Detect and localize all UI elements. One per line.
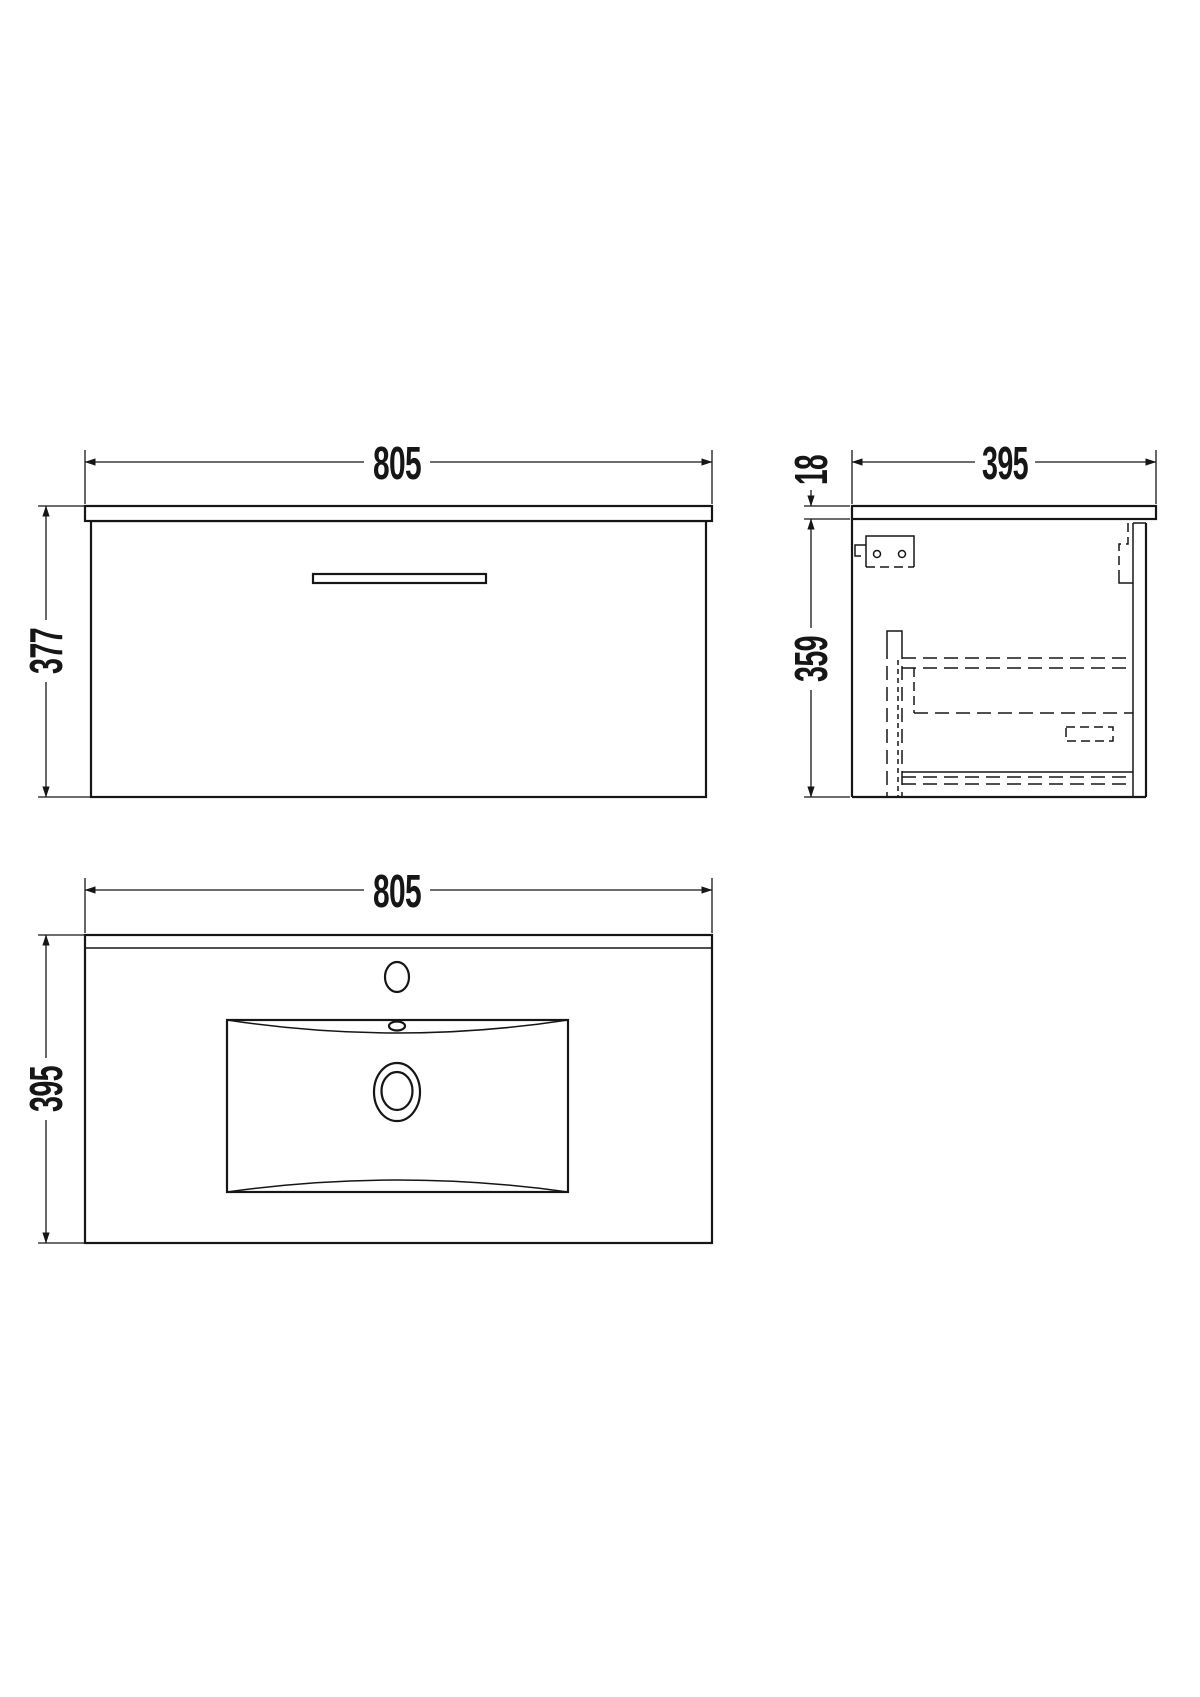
side-front-fixing-bracket: [1119, 523, 1133, 583]
side-worktop-thickness-dimension: 18: [785, 455, 850, 519]
front-height-label: 377: [20, 628, 72, 674]
front-cabinet-body: [91, 521, 706, 797]
side-section-view: 395 18 359: [785, 437, 1156, 797]
plan-worktop-outline: [85, 935, 712, 1243]
side-mounting-rail: [887, 631, 902, 797]
side-wall-bracket: [855, 536, 914, 567]
basin-bowl: [227, 1020, 568, 1192]
drawer-runner-clip: [1066, 727, 1113, 741]
plan-depth-label: 395: [20, 1066, 72, 1112]
side-cabinet-height-label: 359: [785, 636, 837, 682]
fixing-bracket-step: [1119, 570, 1133, 583]
bracket-wall-hook: [855, 545, 866, 556]
side-depth-label: 395: [982, 437, 1028, 489]
front-elevation-view: 805 377: [20, 437, 712, 797]
technical-drawing-page: 805 377 395 18: [0, 0, 1200, 1697]
front-width-label: 805: [373, 437, 421, 489]
side-worktop: [852, 506, 1156, 519]
plan-width-dimension: 805: [85, 865, 712, 933]
front-worktop: [85, 506, 712, 521]
bracket-screw-hole: [899, 551, 906, 558]
waste-inner-ring: [382, 1072, 413, 1110]
bracket-outline: [866, 536, 914, 567]
rail-top-cap: [887, 631, 902, 645]
bracket-screw-hole: [874, 551, 881, 558]
technical-drawing-canvas: 805 377 395 18: [0, 0, 1200, 1697]
side-depth-dimension: 395: [852, 437, 1156, 504]
plan-depth-dimension: 395: [20, 935, 84, 1243]
fixing-bracket-hidden: [1119, 523, 1128, 570]
side-worktop-thickness-label: 18: [785, 455, 837, 485]
plan-basin-view: 805 395: [20, 865, 712, 1243]
basin-back-slope-curve: [227, 1180, 568, 1192]
front-width-dimension: 805: [85, 437, 712, 504]
side-cabinet-height-dimension: 359: [785, 519, 850, 797]
overflow-hole: [389, 1022, 405, 1031]
side-drawer-box-hidden: [902, 658, 1133, 784]
tap-hole: [385, 962, 409, 992]
plan-width-label: 805: [373, 865, 421, 917]
basin-outline: [227, 1020, 568, 1192]
front-height-dimension: 377: [20, 506, 90, 797]
